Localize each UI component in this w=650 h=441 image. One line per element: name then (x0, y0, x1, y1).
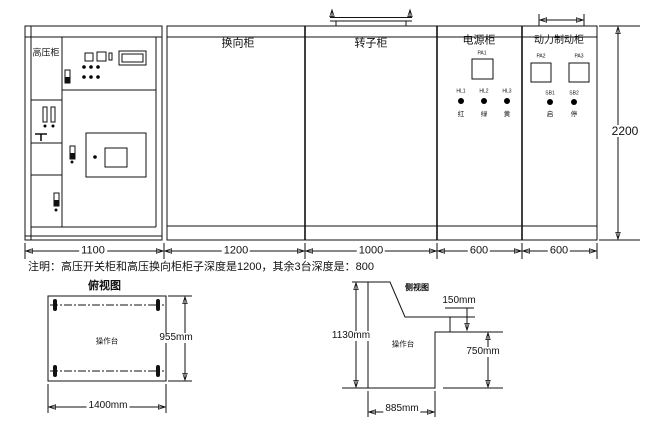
console-profile-outline (368, 282, 450, 388)
lamp-char: 停 (571, 112, 578, 119)
key-symbol (35, 134, 47, 141)
lamp-tag: HL2 (479, 90, 488, 95)
width-dim-1000: 1000 (357, 246, 385, 257)
hv-cabinet-panel-devices (62, 51, 156, 177)
step-dim-150: 150mm (442, 296, 475, 306)
rotor-cabinet-label: 转子柜 (355, 39, 388, 50)
step-dimension-150 (445, 308, 503, 332)
indicator-lamp (458, 98, 464, 104)
brake-cabinet-label: 动力制动柜 (534, 36, 584, 46)
note-text: 注明：高压开关柜和高压换向柜柜子深度是1200，其余3台深度是：800 (28, 262, 374, 273)
side-view-caption: 侧视图 (405, 284, 429, 292)
drawing-linework (0, 0, 650, 441)
width-dim-1200: 1200 (222, 246, 250, 257)
front-elevation (25, 10, 640, 259)
power-cabinet-label: 电源柜 (463, 36, 496, 47)
depth-dim-955: 955mm (157, 333, 194, 343)
top-view-caption: 俯视图 (88, 281, 121, 292)
span-bar (539, 14, 584, 26)
side-view-console-label: 操作台 (392, 340, 415, 348)
hv-cabinet-label: 高压柜 (32, 49, 59, 58)
cabinet-row-outline (167, 26, 597, 240)
front-height-dim-750: 750mm (464, 347, 501, 357)
mounting-pad (53, 299, 57, 311)
top-view-console-label: 操作台 (96, 337, 119, 345)
fuse-element (43, 107, 47, 122)
indicator-lamp (481, 98, 487, 104)
panel-display (119, 51, 146, 65)
base-depth-dim-885: 885mm (383, 404, 420, 414)
lifting-beam (330, 10, 412, 26)
width-dim-1400: 1400mm (87, 401, 130, 411)
width-dimensions (25, 243, 597, 259)
lamp-tag: HL3 (502, 90, 511, 95)
engineering-drawing: 高压柜 换向柜 转子柜 电源柜 动力制动柜 PA1 HL1 HL2 HL3 红 … (0, 0, 650, 441)
meter-pa3 (569, 63, 589, 82)
indicator-lamp (571, 99, 577, 105)
meter-pa2 (531, 63, 551, 82)
meter-tag-pa1: PA1 (477, 52, 486, 57)
mounting-pad (156, 299, 160, 311)
mounting-pad (156, 365, 160, 377)
inspection-window (86, 133, 146, 177)
power-cabinet-devices (458, 59, 510, 104)
lamp-char: 黄 (504, 112, 511, 119)
meter-tag-pa3: PA3 (574, 55, 583, 60)
brake-cabinet-devices (531, 63, 589, 105)
indicator-lamp (504, 98, 510, 104)
hv-cabinet-left-column-devices (35, 107, 59, 212)
panel-switch (85, 53, 93, 61)
lamp-tag: SB1 (545, 92, 554, 97)
front-height-dimension-750 (443, 333, 503, 388)
width-dim-600b: 600 (548, 246, 570, 257)
lamp-char: 启 (547, 112, 554, 119)
width-dim-1100: 1100 (79, 246, 107, 257)
width-dim-600a: 600 (468, 246, 490, 257)
indicator-lamp (547, 99, 553, 105)
height-dim-1130: 1130mm (330, 331, 372, 341)
lamp-char: 绿 (481, 112, 488, 119)
lamp-tag: SB2 (569, 92, 578, 97)
ammeter-pa1 (472, 59, 493, 79)
reversing-cabinet-label: 换向柜 (222, 39, 255, 50)
lamp-char: 红 (458, 112, 465, 119)
meter-tag-pa2: PA2 (536, 55, 545, 60)
height-dimension-value: 2200 (610, 125, 641, 137)
panel-switch (97, 52, 106, 61)
fuse-element (51, 107, 55, 122)
mounting-pad (53, 365, 57, 377)
lamp-tag: HL1 (456, 90, 465, 95)
top-view (48, 296, 192, 413)
